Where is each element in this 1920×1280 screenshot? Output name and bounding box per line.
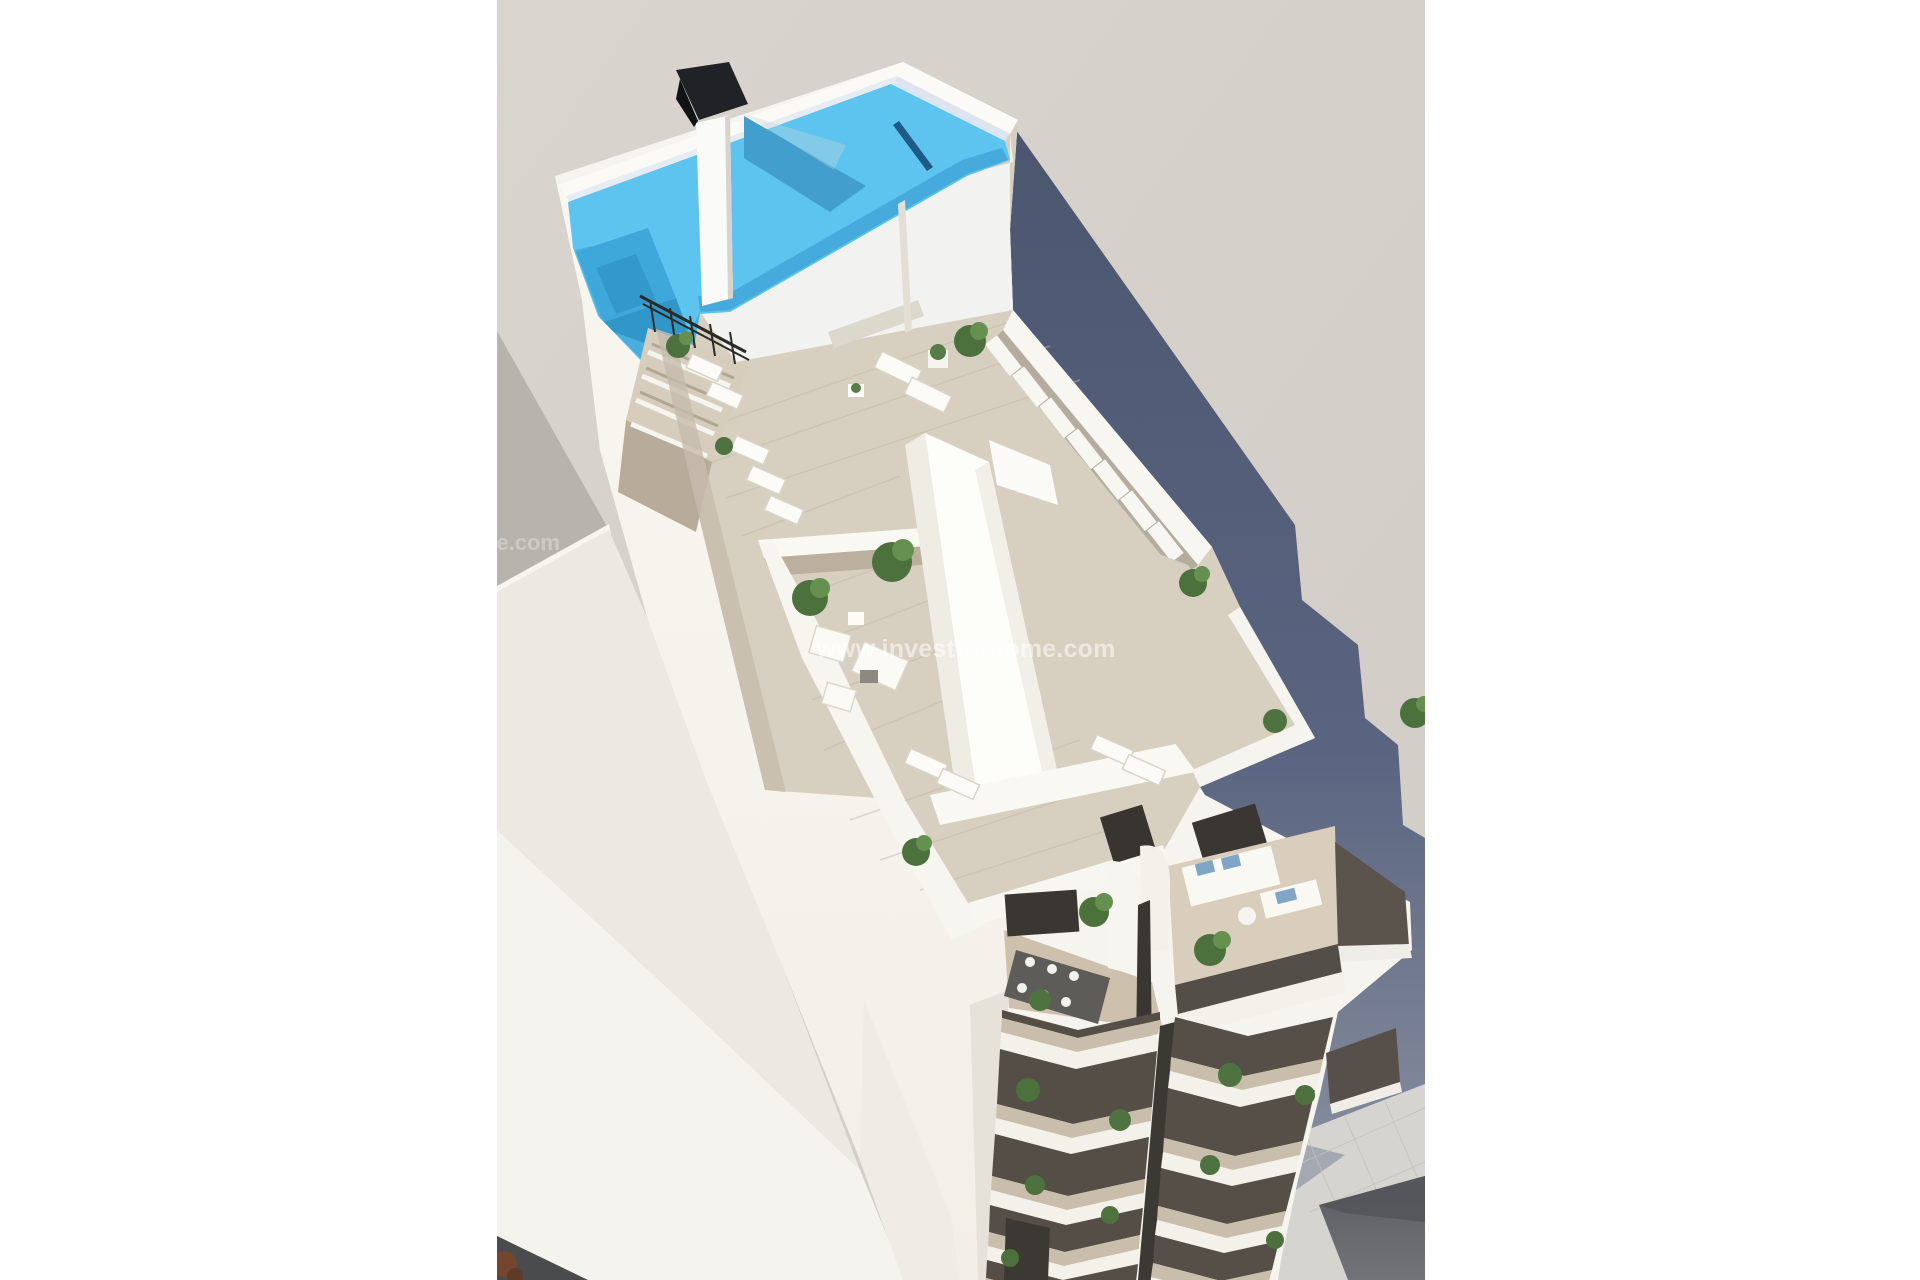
svg-text:www.investforhome.com: www.investforhome.com [815, 635, 1115, 663]
